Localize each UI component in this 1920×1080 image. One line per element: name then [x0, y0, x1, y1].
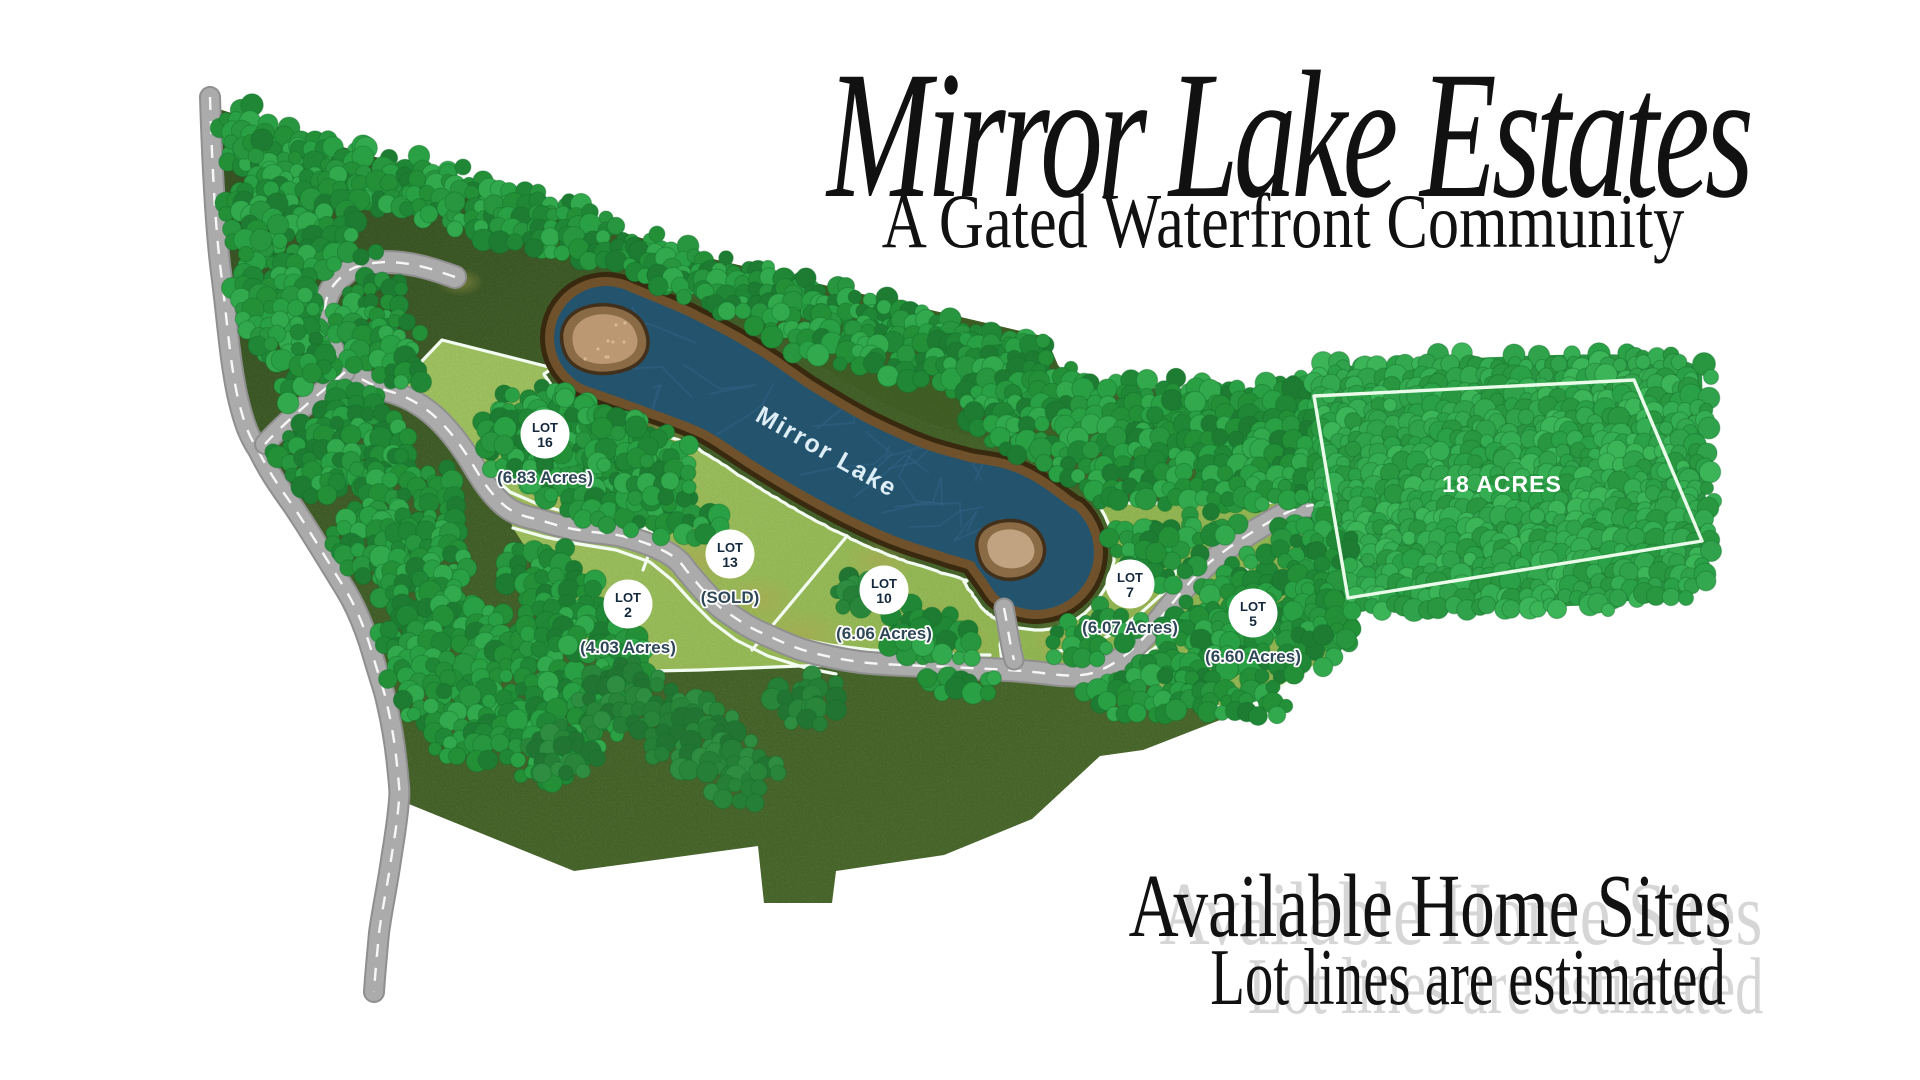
svg-text:LOT: LOT	[615, 590, 641, 605]
svg-text:LOT: LOT	[1240, 599, 1266, 614]
svg-text:(6.07 Acres): (6.07 Acres)	[1082, 618, 1178, 637]
svg-text:LOT: LOT	[717, 540, 743, 555]
svg-text:LOT: LOT	[1117, 570, 1143, 585]
svg-text:(SOLD): (SOLD)	[701, 588, 760, 607]
svg-text:13: 13	[722, 554, 738, 570]
svg-text:7: 7	[1126, 584, 1134, 600]
svg-text:18 ACRES: 18 ACRES	[1442, 471, 1562, 497]
svg-text:10: 10	[876, 590, 892, 606]
svg-text:Lot lines are estimated: Lot lines are estimated	[1210, 934, 1726, 1023]
svg-text:(6.60 Acres): (6.60 Acres)	[1205, 647, 1301, 666]
svg-text:(6.06 Acres): (6.06 Acres)	[836, 624, 932, 643]
svg-text:(4.03 Acres): (4.03 Acres)	[580, 638, 676, 657]
svg-text:16: 16	[537, 434, 553, 450]
svg-text:(6.83 Acres): (6.83 Acres)	[497, 468, 593, 487]
svg-text:LOT: LOT	[871, 576, 897, 591]
svg-text:2: 2	[624, 604, 632, 620]
svg-text:LOT: LOT	[532, 420, 558, 435]
svg-text:5: 5	[1249, 613, 1257, 629]
svg-text:A Gated Waterfront Community: A Gated Waterfront Community	[882, 180, 1685, 265]
